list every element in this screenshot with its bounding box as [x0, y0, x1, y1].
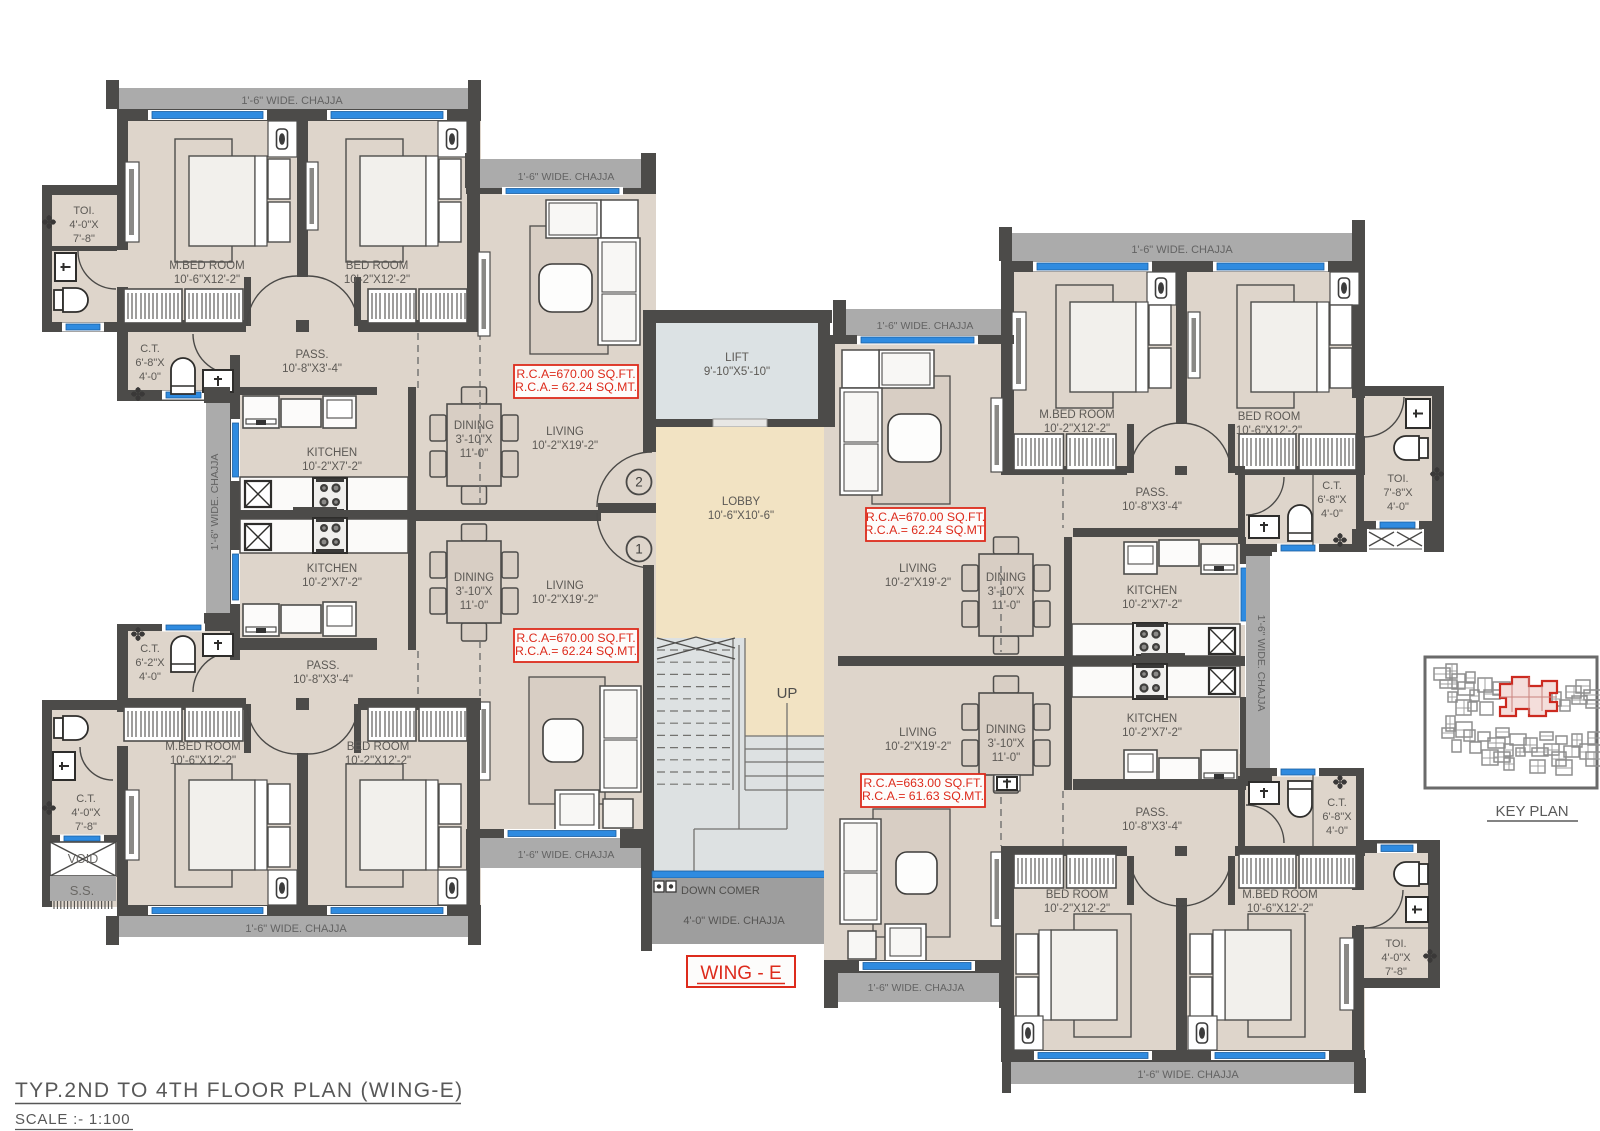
svg-text:9'-10"X5'-10": 9'-10"X5'-10" — [704, 366, 770, 378]
svg-text:10'-2"X7'-2": 10'-2"X7'-2" — [1122, 599, 1182, 611]
svg-text:C.T.: C.T. — [76, 793, 96, 805]
svg-text:10'-2"X12'-2": 10'-2"X12'-2" — [1044, 423, 1110, 435]
svg-text:LIVING: LIVING — [546, 426, 584, 438]
svg-text:10'-2"X19'-2": 10'-2"X19'-2" — [532, 440, 598, 452]
svg-text:1'-6" WIDE. CHAJJA: 1'-6" WIDE. CHAJJA — [518, 849, 615, 861]
svg-text:R.C.A=670.00 SQ.FT.: R.C.A=670.00 SQ.FT. — [516, 367, 635, 381]
svg-text:10'-2"X7'-2": 10'-2"X7'-2" — [302, 461, 362, 473]
svg-text:C.T.: C.T. — [140, 643, 160, 655]
svg-text:TOI.: TOI. — [1387, 473, 1408, 485]
svg-text:10'-2"X19'-2": 10'-2"X19'-2" — [885, 577, 951, 589]
svg-text:S.S.: S.S. — [70, 883, 95, 898]
svg-text:4'-0": 4'-0" — [1387, 501, 1409, 513]
svg-text:PASS.: PASS. — [1135, 487, 1168, 499]
svg-text:KITCHEN: KITCHEN — [1127, 713, 1177, 725]
svg-text:BED ROOM: BED ROOM — [347, 741, 410, 753]
svg-text:C.T.: C.T. — [1322, 480, 1342, 492]
svg-text:4'-0"X: 4'-0"X — [69, 219, 99, 231]
svg-text:10'-2"X12'-2": 10'-2"X12'-2" — [344, 274, 410, 286]
svg-text:DOWN COMER: DOWN COMER — [681, 885, 760, 897]
svg-text:KITCHEN: KITCHEN — [307, 447, 357, 459]
svg-text:LIVING: LIVING — [899, 563, 937, 575]
svg-text:1'-6" WIDE. CHAJJA: 1'-6" WIDE. CHAJJA — [1131, 244, 1233, 256]
svg-text:3'-10"X: 3'-10"X — [456, 434, 493, 446]
svg-text:SCALE :- 1:100: SCALE :- 1:100 — [15, 1111, 130, 1128]
svg-text:M.BED ROOM: M.BED ROOM — [169, 260, 244, 272]
svg-text:4'-0": 4'-0" — [139, 671, 161, 683]
svg-text:11'-0": 11'-0" — [460, 600, 488, 612]
svg-text:PASS.: PASS. — [306, 660, 339, 672]
svg-text:6'-8"X: 6'-8"X — [1322, 811, 1352, 823]
svg-text:1'-6" WIDE. CHAJJA: 1'-6" WIDE. CHAJJA — [868, 982, 965, 994]
svg-text:VOID: VOID — [68, 852, 99, 866]
svg-text:7'-8"X: 7'-8"X — [1383, 487, 1413, 499]
svg-text:KITCHEN: KITCHEN — [1127, 585, 1177, 597]
svg-text:11'-0": 11'-0" — [992, 752, 1020, 764]
svg-text:10'-2"X19'-2": 10'-2"X19'-2" — [532, 594, 598, 606]
svg-text:6'-8"X: 6'-8"X — [1317, 494, 1347, 506]
svg-text:LIVING: LIVING — [899, 727, 937, 739]
svg-text:10'-6"X12'-2": 10'-6"X12'-2" — [1247, 903, 1313, 915]
svg-text:10'-2"X12'-2": 10'-2"X12'-2" — [1044, 903, 1110, 915]
svg-text:6'-2"X: 6'-2"X — [135, 657, 165, 669]
svg-text:DINING: DINING — [454, 572, 494, 584]
svg-text:KITCHEN: KITCHEN — [307, 563, 357, 575]
svg-text:R.C.A.= 61.63 SQ.MT.: R.C.A.= 61.63 SQ.MT. — [862, 789, 984, 803]
svg-text:LIFT: LIFT — [725, 352, 749, 364]
svg-text:TOI.: TOI. — [73, 205, 94, 217]
svg-text:10'-6"X12'-2": 10'-6"X12'-2" — [174, 274, 240, 286]
svg-text:1'-6" WIDE. CHAJJA: 1'-6" WIDE. CHAJJA — [877, 320, 974, 332]
svg-text:BED ROOM: BED ROOM — [1238, 411, 1301, 423]
svg-text:11'-0": 11'-0" — [992, 600, 1020, 612]
svg-text:R.C.A=670.00 SQ.FT.: R.C.A=670.00 SQ.FT. — [516, 631, 635, 645]
svg-text:R.C.A.= 62.24 SQ.MT.: R.C.A.= 62.24 SQ.MT. — [865, 523, 987, 537]
svg-text:C.T.: C.T. — [140, 343, 160, 355]
svg-text:1'-6" WIDE. CHAJJA: 1'-6" WIDE. CHAJJA — [1137, 1069, 1239, 1081]
svg-text:1: 1 — [635, 542, 643, 557]
svg-text:7'-8": 7'-8" — [73, 233, 95, 245]
svg-text:DINING: DINING — [986, 572, 1026, 584]
svg-text:10'-2"X7'-2": 10'-2"X7'-2" — [302, 577, 362, 589]
svg-text:1'-6" WIDE. CHAJJA: 1'-6" WIDE. CHAJJA — [1255, 615, 1267, 712]
svg-text:PASS.: PASS. — [1135, 807, 1168, 819]
svg-text:R.C.A=670.00 SQ.FT.: R.C.A=670.00 SQ.FT. — [866, 510, 985, 524]
svg-text:11'-0": 11'-0" — [460, 448, 488, 460]
svg-text:10'-8"X3'-4": 10'-8"X3'-4" — [282, 363, 342, 375]
svg-text:1'-6" WIDE. CHAJJA: 1'-6" WIDE. CHAJJA — [245, 923, 347, 935]
svg-text:PASS.: PASS. — [295, 349, 328, 361]
svg-text:KEY PLAN: KEY PLAN — [1495, 803, 1568, 820]
svg-text:BED ROOM: BED ROOM — [1046, 889, 1109, 901]
svg-text:10'-6"X12'-2": 10'-6"X12'-2" — [1236, 425, 1302, 437]
svg-text:3'-10"X: 3'-10"X — [988, 586, 1025, 598]
svg-text:C.T.: C.T. — [1327, 797, 1347, 809]
svg-text:M.BED ROOM: M.BED ROOM — [165, 741, 240, 753]
svg-text:M.BED ROOM: M.BED ROOM — [1039, 409, 1114, 421]
svg-text:1'-6" WIDE. CHAJJA: 1'-6" WIDE. CHAJJA — [209, 454, 221, 551]
svg-text:10'-2"X19'-2": 10'-2"X19'-2" — [885, 741, 951, 753]
svg-text:10'-8"X3'-4": 10'-8"X3'-4" — [293, 674, 353, 686]
svg-text:6'-8"X: 6'-8"X — [135, 357, 165, 369]
svg-text:10'-6"X10'-6": 10'-6"X10'-6" — [708, 510, 774, 522]
svg-text:10'-8"X3'-4": 10'-8"X3'-4" — [1122, 501, 1182, 513]
svg-text:4'-0": 4'-0" — [1321, 508, 1343, 520]
svg-text:R.C.A=663.00 SQ.FT.: R.C.A=663.00 SQ.FT. — [863, 776, 982, 790]
svg-text:BED ROOM: BED ROOM — [346, 260, 409, 272]
svg-text:4'-0": 4'-0" — [139, 371, 161, 383]
svg-text:1'-6" WIDE. CHAJJA: 1'-6" WIDE. CHAJJA — [518, 171, 615, 183]
svg-text:WING - E: WING - E — [700, 963, 781, 984]
svg-text:UP: UP — [777, 685, 798, 702]
svg-text:DINING: DINING — [454, 420, 494, 432]
svg-text:4'-0": 4'-0" — [1326, 825, 1348, 837]
svg-text:10'-2"X7'-2": 10'-2"X7'-2" — [1122, 727, 1182, 739]
svg-text:3'-10"X: 3'-10"X — [456, 586, 493, 598]
svg-text:TYP.2ND TO 4TH FLOOR PLAN (WIN: TYP.2ND TO 4TH FLOOR PLAN (WING-E) — [15, 1079, 463, 1102]
svg-text:4'-0"X: 4'-0"X — [1381, 952, 1411, 964]
svg-text:R.C.A.= 62.24 SQ.MT.: R.C.A.= 62.24 SQ.MT. — [515, 644, 637, 658]
svg-text:R.C.A.= 62.24 SQ.MT.: R.C.A.= 62.24 SQ.MT. — [515, 380, 637, 394]
svg-text:7'-8": 7'-8" — [75, 821, 97, 833]
svg-text:3'-10"X: 3'-10"X — [988, 738, 1025, 750]
svg-text:4'-0"X: 4'-0"X — [71, 807, 101, 819]
svg-text:2: 2 — [635, 475, 643, 490]
svg-text:DINING: DINING — [986, 724, 1026, 736]
svg-text:1'-6" WIDE. CHAJJA: 1'-6" WIDE. CHAJJA — [241, 95, 343, 107]
svg-text:LOBBY: LOBBY — [722, 496, 761, 508]
svg-text:4'-0" WIDE. CHAJJA: 4'-0" WIDE. CHAJJA — [683, 915, 785, 927]
svg-text:TOI.: TOI. — [1385, 938, 1406, 950]
svg-text:M.BED ROOM: M.BED ROOM — [1242, 889, 1317, 901]
svg-text:10'-8"X3'-4": 10'-8"X3'-4" — [1122, 821, 1182, 833]
svg-text:7'-8": 7'-8" — [1385, 966, 1407, 978]
svg-text:LIVING: LIVING — [546, 580, 584, 592]
